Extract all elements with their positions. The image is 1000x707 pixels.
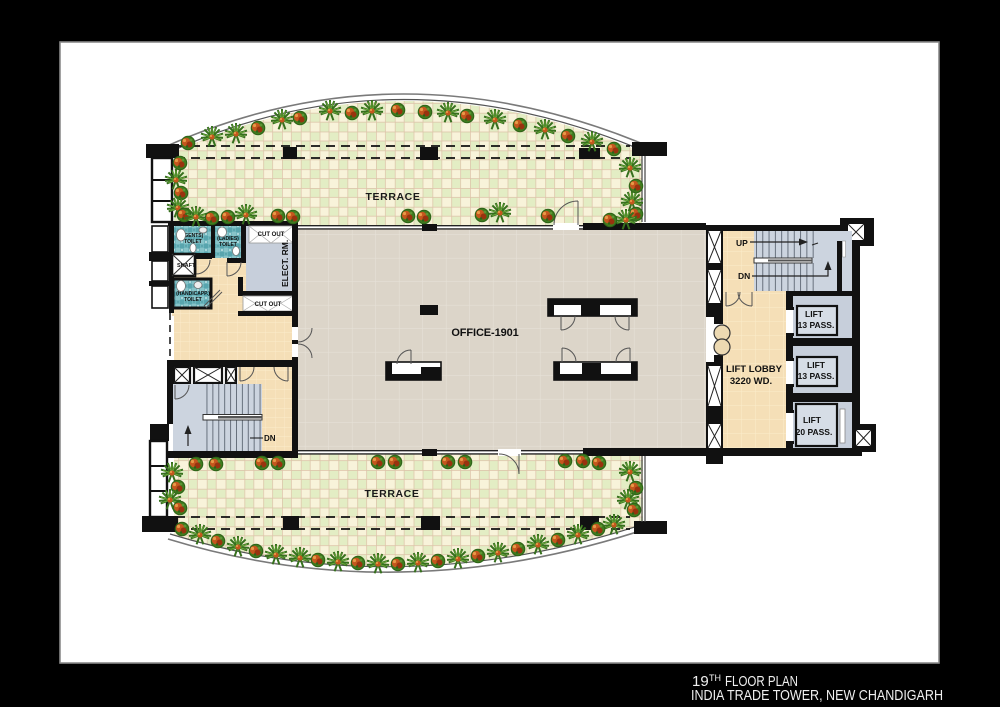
- svg-text:13 PASS.: 13 PASS.: [798, 320, 835, 330]
- svg-text:TERRACE: TERRACE: [366, 191, 421, 203]
- svg-text:OFFICE-1901: OFFICE-1901: [451, 327, 518, 339]
- svg-text:UP: UP: [736, 238, 748, 248]
- svg-text:CUT OUT: CUT OUT: [255, 302, 282, 308]
- svg-text:CUT OUT: CUT OUT: [258, 232, 285, 238]
- svg-text:TOILET: TOILET: [184, 297, 202, 303]
- svg-text:13 PASS.: 13 PASS.: [798, 371, 835, 381]
- svg-text:DN: DN: [264, 434, 276, 443]
- svg-text:3220 WD.: 3220 WD.: [730, 376, 772, 387]
- svg-text:ELECT. RM.: ELECT. RM.: [280, 240, 290, 287]
- svg-text:INDIA TRADE TOWER, NEW CHANDIG: INDIA TRADE TOWER, NEW CHANDIGARH: [691, 687, 943, 704]
- svg-text:LIFT: LIFT: [805, 309, 824, 319]
- svg-text:20 PASS.: 20 PASS.: [796, 427, 833, 437]
- svg-text:LIFT: LIFT: [807, 360, 826, 370]
- svg-text:SHAFT: SHAFT: [177, 263, 196, 269]
- svg-text:TERRACE: TERRACE: [365, 488, 420, 500]
- svg-text:LIFT: LIFT: [803, 415, 822, 425]
- svg-text:DN: DN: [738, 271, 750, 281]
- svg-text:LIFT LOBBY: LIFT LOBBY: [726, 364, 783, 375]
- svg-text:TH: TH: [709, 673, 721, 683]
